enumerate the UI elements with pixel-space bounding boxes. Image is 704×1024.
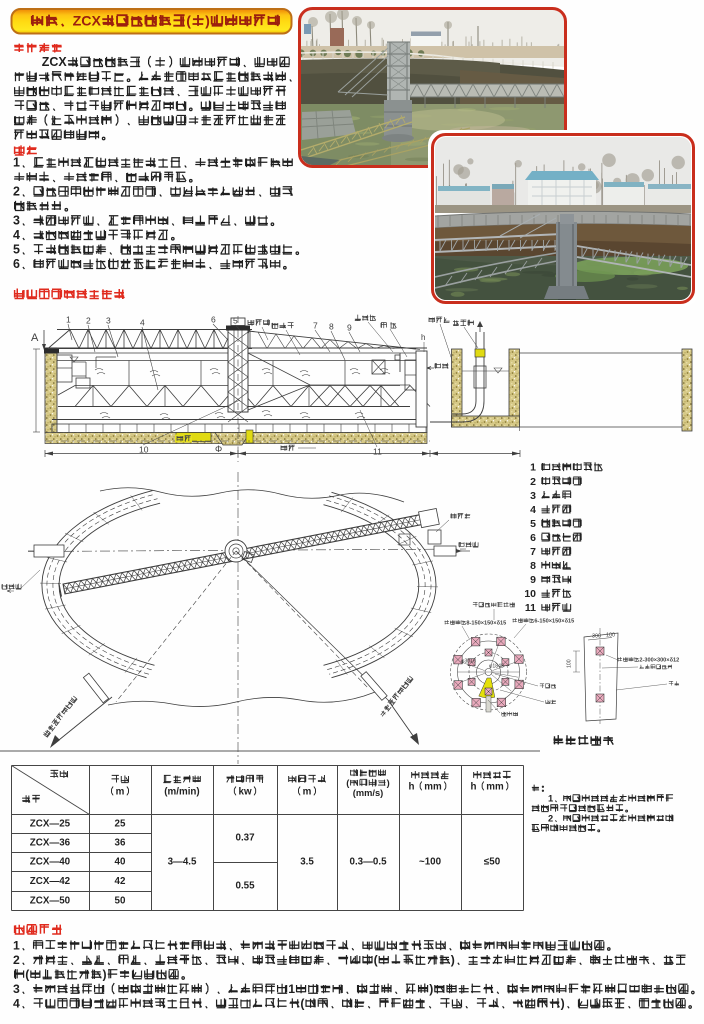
svg-text:3: 3	[106, 315, 111, 325]
svg-text:100: 100	[606, 633, 615, 639]
svg-text:m: m	[116, 786, 125, 797]
svg-text:ZCX—50: ZCX—50	[30, 895, 71, 906]
svg-text:7: 7	[530, 546, 536, 558]
svg-text:6-150×150×δ15: 6-150×150×δ15	[534, 618, 574, 624]
svg-text:kw: kw	[239, 786, 252, 797]
svg-text:7: 7	[313, 320, 318, 330]
svg-text:): )	[561, 996, 565, 1010]
svg-text:φ1848: φ1848	[489, 663, 504, 669]
svg-text:5: 5	[530, 518, 536, 530]
svg-text:ZCX—25: ZCX—25	[30, 818, 71, 829]
svg-text:4: 4	[530, 504, 536, 516]
svg-text:h: h	[421, 333, 425, 342]
svg-text:10: 10	[139, 444, 149, 454]
svg-text:5: 5	[233, 315, 238, 325]
svg-text:ZCX—40: ZCX—40	[30, 856, 71, 867]
svg-text:3: 3	[530, 490, 536, 502]
svg-text:4: 4	[13, 228, 20, 242]
svg-text:2-300×300×δ12: 2-300×300×δ12	[639, 657, 679, 663]
svg-text:300: 300	[592, 634, 601, 640]
svg-text:Φ: Φ	[215, 444, 222, 454]
svg-text:0.37: 0.37	[236, 832, 256, 843]
svg-text:50: 50	[115, 895, 126, 906]
svg-text:): )	[429, 982, 433, 996]
svg-text:φ3016: φ3016	[461, 658, 476, 664]
svg-text:6: 6	[530, 532, 536, 544]
svg-text:9: 9	[347, 322, 352, 332]
svg-text:25: 25	[115, 818, 126, 829]
svg-text:): )	[205, 13, 210, 29]
svg-text:5: 5	[13, 243, 20, 257]
svg-text:ZCX—42: ZCX—42	[30, 876, 71, 887]
svg-text:0.55: 0.55	[236, 880, 256, 891]
svg-text:6: 6	[13, 257, 20, 271]
svg-text:1: 1	[530, 462, 536, 474]
svg-text:h: h	[409, 781, 415, 792]
svg-text:mm: mm	[486, 781, 504, 792]
svg-text:1: 1	[13, 938, 20, 952]
svg-text:1: 1	[13, 156, 20, 170]
svg-text:): )	[103, 967, 107, 981]
svg-text:1: 1	[548, 794, 553, 804]
svg-text:≤50: ≤50	[484, 856, 501, 867]
svg-text:8: 8	[329, 321, 334, 331]
svg-text:9: 9	[530, 574, 536, 586]
svg-text:2: 2	[548, 813, 553, 823]
svg-text:1: 1	[66, 314, 71, 324]
svg-text:3.5: 3.5	[300, 856, 314, 867]
svg-text:m: m	[303, 786, 312, 797]
svg-text:10: 10	[524, 588, 536, 600]
svg-text:mm: mm	[424, 781, 442, 792]
svg-text:8: 8	[530, 560, 536, 572]
svg-text:11: 11	[525, 602, 536, 614]
svg-text:3: 3	[13, 982, 20, 996]
svg-text:36: 36	[115, 837, 126, 848]
svg-text:42: 42	[115, 876, 126, 887]
svg-text:6: 6	[211, 314, 216, 324]
svg-text:2: 2	[530, 476, 536, 488]
svg-text:A: A	[31, 332, 39, 344]
svg-text:100: 100	[566, 659, 572, 668]
svg-text:11: 11	[373, 446, 382, 456]
svg-text:3—4.5: 3—4.5	[168, 856, 197, 867]
svg-text:8-150×150×δ15: 8-150×150×δ15	[466, 620, 506, 626]
svg-text:(m/min): (m/min)	[164, 786, 199, 797]
svg-text:(: (	[186, 13, 191, 29]
svg-text:): )	[387, 778, 390, 788]
svg-text:4: 4	[140, 317, 145, 327]
svg-text:h: h	[471, 781, 477, 792]
svg-text:(mm/s): (mm/s)	[353, 788, 383, 798]
svg-text:1: 1	[288, 982, 295, 996]
svg-text:4: 4	[13, 996, 20, 1010]
svg-text:ZCX: ZCX	[73, 13, 102, 29]
svg-text:2: 2	[86, 315, 91, 325]
svg-text:ZCX—36: ZCX—36	[30, 837, 71, 848]
svg-text:0.3—0.5: 0.3—0.5	[350, 856, 388, 867]
svg-text:~100: ~100	[419, 856, 442, 867]
svg-text:2: 2	[13, 953, 20, 967]
svg-text:2: 2	[13, 185, 20, 199]
svg-text:3: 3	[13, 214, 20, 228]
svg-text:40: 40	[115, 856, 126, 867]
svg-text:): )	[451, 953, 455, 967]
svg-text:ZCX: ZCX	[42, 55, 68, 69]
